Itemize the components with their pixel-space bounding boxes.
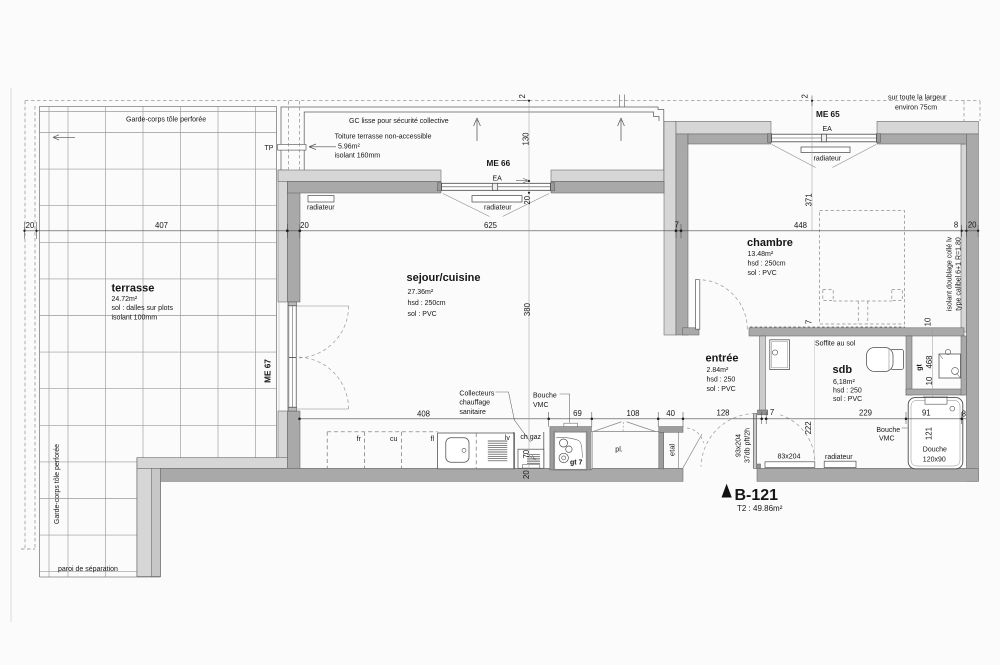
svg-text:sur toute la largeur: sur toute la largeur xyxy=(888,94,947,101)
svg-text:VMC: VMC xyxy=(533,402,549,409)
svg-text:radiateur: radiateur xyxy=(307,205,335,212)
svg-text:120x90: 120x90 xyxy=(923,457,946,464)
svg-text:20: 20 xyxy=(522,470,531,479)
svg-text:sol : dalles sur plots: sol : dalles sur plots xyxy=(112,305,174,312)
svg-text:hsd : 250: hsd : 250 xyxy=(707,377,736,384)
svg-text:468: 468 xyxy=(925,355,934,368)
svg-text:EA: EA xyxy=(493,176,503,183)
svg-text:B-121: B-121 xyxy=(735,487,779,504)
svg-text:VMC: VMC xyxy=(879,436,895,443)
svg-text:hsd : 250cm: hsd : 250cm xyxy=(748,261,786,268)
svg-text:isolant doublage collé lv: isolant doublage collé lv xyxy=(947,236,954,311)
svg-text:gt: gt xyxy=(917,364,924,371)
svg-text:ME 65: ME 65 xyxy=(816,110,840,119)
svg-text:7: 7 xyxy=(770,408,774,417)
svg-text:20: 20 xyxy=(968,221,977,230)
svg-text:2: 2 xyxy=(801,94,810,98)
svg-text:371: 371 xyxy=(805,193,814,206)
svg-text:121: 121 xyxy=(924,427,933,440)
svg-text:terrasse: terrasse xyxy=(112,283,155,295)
svg-text:5.96m²: 5.96m² xyxy=(338,144,360,151)
svg-text:ME 67: ME 67 xyxy=(264,359,273,383)
svg-text:radiateur: radiateur xyxy=(814,156,842,163)
svg-text:24.72m²: 24.72m² xyxy=(112,296,138,303)
svg-text:8: 8 xyxy=(954,221,958,230)
svg-text:2.84m²: 2.84m² xyxy=(707,367,729,374)
svg-text:gt 7: gt 7 xyxy=(570,460,583,467)
svg-text:T2 : 49.86m²: T2 : 49.86m² xyxy=(737,504,783,513)
svg-text:93x204: 93x204 xyxy=(736,434,743,457)
svg-text:hsd : 250cm: hsd : 250cm xyxy=(408,300,446,307)
svg-text:Garde-corps tôle perforée: Garde-corps tôle perforée xyxy=(126,117,206,124)
svg-text:229: 229 xyxy=(859,409,872,418)
svg-text:ME 66: ME 66 xyxy=(487,159,511,168)
svg-text:Soffite au sol: Soffite au sol xyxy=(815,341,856,348)
svg-text:ch gaz: ch gaz xyxy=(520,434,541,441)
svg-text:chauffage: chauffage xyxy=(459,400,490,407)
svg-text:isolant 100mm: isolant 100mm xyxy=(112,314,158,321)
svg-text:fl: fl xyxy=(431,436,435,443)
svg-text:Bouche: Bouche xyxy=(533,393,557,400)
svg-text:20: 20 xyxy=(300,221,309,230)
svg-text:environ 75cm: environ 75cm xyxy=(895,104,937,111)
svg-text:etal: etal xyxy=(667,444,676,457)
svg-text:8: 8 xyxy=(962,409,966,418)
svg-text:Bouche: Bouche xyxy=(876,427,900,434)
svg-text:fr: fr xyxy=(357,436,362,443)
svg-text:128: 128 xyxy=(716,408,729,417)
svg-text:10: 10 xyxy=(925,376,934,385)
svg-text:83x204: 83x204 xyxy=(778,453,801,460)
svg-text:Toiture terrasse non-accessibl: Toiture terrasse non-accessible xyxy=(335,133,432,140)
svg-text:TP: TP xyxy=(265,145,274,152)
svg-text:sejour/cuisine: sejour/cuisine xyxy=(407,272,481,284)
svg-text:448: 448 xyxy=(794,221,807,230)
svg-text:cu: cu xyxy=(390,436,398,443)
svg-text:radiateur: radiateur xyxy=(825,454,853,461)
svg-text:222: 222 xyxy=(804,421,813,434)
svg-text:40: 40 xyxy=(666,409,675,418)
svg-text:entrée: entrée xyxy=(706,353,739,365)
svg-text:sanitaire: sanitaire xyxy=(459,409,486,416)
svg-text:10: 10 xyxy=(923,317,932,326)
svg-text:radiateur: radiateur xyxy=(484,205,512,212)
svg-text:37db pft/2h: 37db pft/2h xyxy=(745,428,752,463)
svg-text:sdb: sdb xyxy=(833,364,853,376)
svg-text:sol : PVC: sol : PVC xyxy=(748,270,777,277)
svg-text:408: 408 xyxy=(417,410,430,419)
svg-text:hsd : 250: hsd : 250 xyxy=(833,388,862,395)
svg-text:EA: EA xyxy=(823,126,833,133)
svg-text:20: 20 xyxy=(523,195,532,204)
svg-text:sol : PVC: sol : PVC xyxy=(408,311,437,318)
svg-text:chambre: chambre xyxy=(747,237,793,249)
svg-text:69: 69 xyxy=(573,409,582,418)
svg-text:20: 20 xyxy=(26,221,35,230)
svg-text:isolant 160mm: isolant 160mm xyxy=(335,152,381,159)
svg-text:27.36m²: 27.36m² xyxy=(408,289,434,296)
svg-text:91: 91 xyxy=(922,409,931,418)
svg-text:GC lisse pour sécurité collect: GC lisse pour sécurité collective xyxy=(349,118,449,125)
svg-text:6,18m²: 6,18m² xyxy=(833,379,855,386)
svg-text:Collecteurs: Collecteurs xyxy=(459,390,495,397)
svg-text:13.48m²: 13.48m² xyxy=(748,251,774,258)
svg-text:type calibel 6+1 R=1.80: type calibel 6+1 R=1.80 xyxy=(955,237,962,311)
svg-text:130: 130 xyxy=(522,132,531,146)
svg-text:sol : PVC: sol : PVC xyxy=(833,396,862,403)
svg-text:625: 625 xyxy=(484,221,498,230)
svg-text:pl.: pl. xyxy=(615,446,622,453)
svg-text:Garde-corps tôle perforée: Garde-corps tôle perforée xyxy=(54,444,61,524)
svg-text:70: 70 xyxy=(522,449,531,458)
svg-text:7: 7 xyxy=(805,320,814,324)
svg-text:Douche: Douche xyxy=(923,447,947,454)
svg-text:paroi de séparation: paroi de séparation xyxy=(58,566,118,573)
svg-text:2: 2 xyxy=(518,94,527,98)
svg-text:380: 380 xyxy=(523,302,532,316)
svg-text:108: 108 xyxy=(626,409,639,418)
svg-text:407: 407 xyxy=(155,221,168,230)
svg-text:7: 7 xyxy=(675,220,679,229)
svg-text:lv: lv xyxy=(505,435,511,442)
svg-text:sol : PVC: sol : PVC xyxy=(707,386,736,393)
